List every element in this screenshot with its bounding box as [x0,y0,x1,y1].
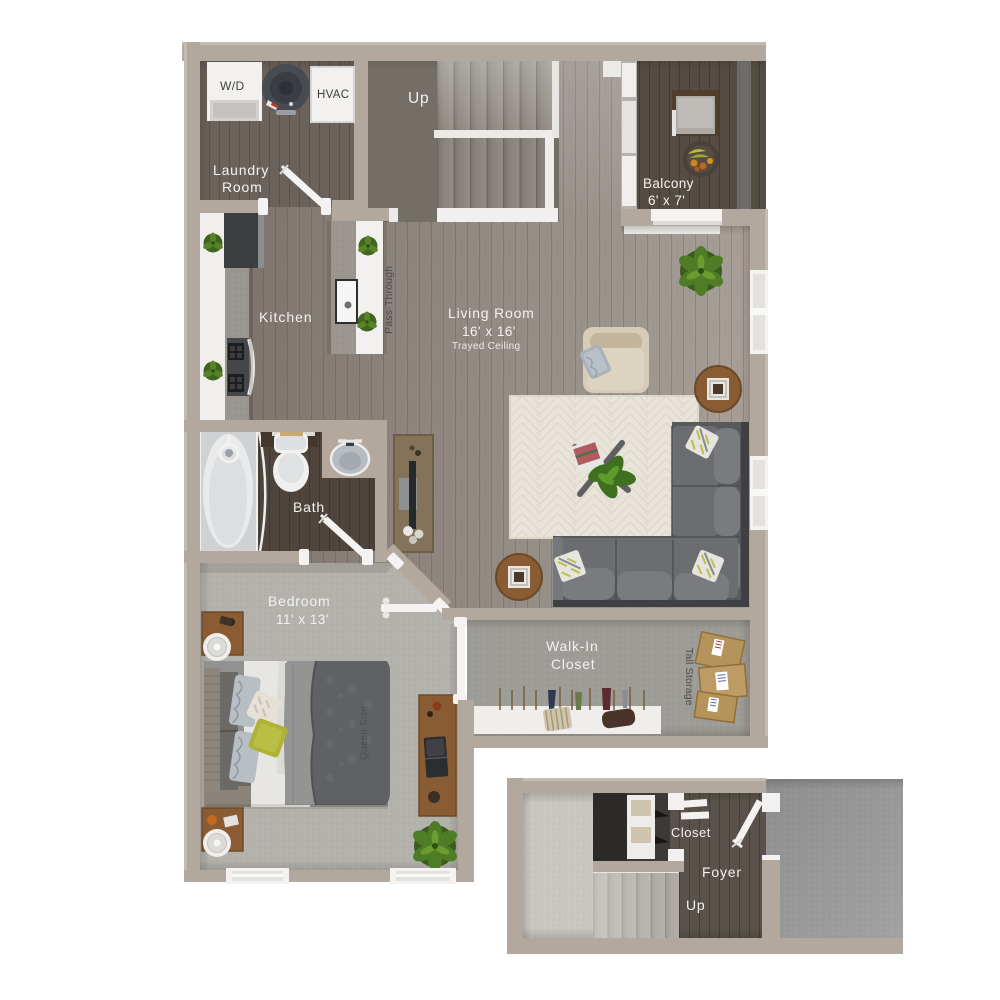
svg-text:Queen Size: Queen Size [359,706,370,760]
svg-text:Kitchen: Kitchen [259,309,313,325]
svg-text:Up: Up [408,90,429,107]
svg-text:Room: Room [222,179,263,195]
svg-text:Living Room: Living Room [448,305,535,321]
svg-text:Balcony: Balcony [643,176,694,191]
svg-text:Laundry: Laundry [213,162,269,178]
svg-text:Trayed Ceiling: Trayed Ceiling [452,341,520,352]
svg-text:6' x 7': 6' x 7' [648,193,685,208]
svg-text:Walk-In: Walk-In [546,638,599,654]
svg-text:11' x 13': 11' x 13' [276,612,329,627]
svg-text:16' x 16': 16' x 16' [462,324,516,339]
svg-text:Pass-Through: Pass-Through [383,266,395,334]
svg-text:Closet: Closet [671,825,711,840]
svg-text:Bedroom: Bedroom [268,593,330,609]
svg-text:W/D: W/D [220,79,245,93]
svg-text:Up: Up [686,897,706,913]
svg-text:Closet: Closet [551,656,595,672]
svg-text:Bath: Bath [293,499,325,515]
svg-text:Foyer: Foyer [702,864,742,880]
svg-text:Tall Storage: Tall Storage [683,648,695,706]
svg-text:HVAC: HVAC [317,89,349,101]
